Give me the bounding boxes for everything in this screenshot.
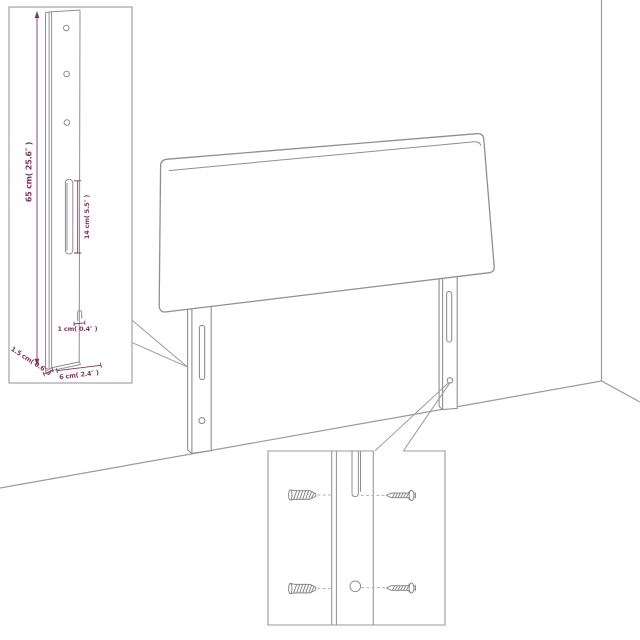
callout-border xyxy=(268,451,445,625)
leader-line xyxy=(403,383,449,451)
mounting-hole xyxy=(64,120,70,126)
headboard-left-leg xyxy=(188,297,212,454)
mounting-hole xyxy=(64,25,70,31)
dimension-label-leg-height: 65 cm( 25.6″ ) xyxy=(25,142,34,202)
dimension-label-hook-offset: 1 cm( 0.4″ ) xyxy=(58,325,98,333)
dimension-label-slot-length: 14 cm( 5.5″ ) xyxy=(83,194,91,238)
assembly-diagram xyxy=(0,0,640,640)
mounting-hole xyxy=(64,71,70,77)
leader-line xyxy=(132,342,188,367)
leader-line xyxy=(375,383,449,451)
leader-line xyxy=(132,320,188,367)
right-leg-hole xyxy=(447,378,452,383)
figure-canvas: 65 cm( 25.6″ ) 14 cm( 5.5″ ) 1 cm( 0.4″ … xyxy=(0,0,640,640)
left-leg-hole xyxy=(199,418,205,424)
callout-leader-lines xyxy=(132,320,450,451)
floor-line-right xyxy=(602,381,640,402)
left-leg-slot xyxy=(199,325,204,379)
right-leg-slot xyxy=(447,291,452,342)
detail-callout-bottom xyxy=(268,451,445,625)
